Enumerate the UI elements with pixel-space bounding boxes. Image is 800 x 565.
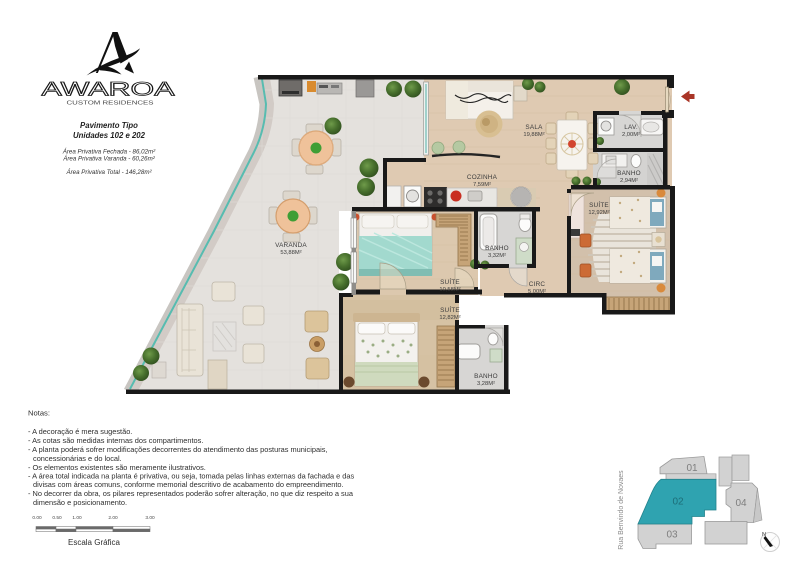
svg-text:N: N [762, 532, 766, 538]
svg-text:Pavimento Tipo: Pavimento Tipo [80, 121, 138, 130]
svg-text:SUÍTE: SUÍTE [589, 200, 609, 209]
svg-text:CUSTOM RESIDENCES: CUSTOM RESIDENCES [67, 101, 155, 107]
svg-text:2,94M²: 2,94M² [620, 178, 638, 184]
svg-text:SUÍTE: SUÍTE [440, 305, 460, 314]
svg-text:VARANDA: VARANDA [275, 242, 307, 249]
svg-text:- No decorrer da obra, os pila: - No decorrer da obra, os pilares repres… [28, 489, 354, 498]
svg-text:- As cotas são medidas interna: - As cotas são medidas internas dos comp… [28, 436, 203, 445]
svg-text:- A planta poderá sofrer modif: - A planta poderá sofrer modificações de… [28, 445, 328, 454]
svg-text:01: 01 [686, 463, 698, 474]
svg-text:Escala Gráfica: Escala Gráfica [68, 538, 121, 547]
svg-text:LAV.: LAV. [624, 124, 638, 131]
svg-text:COZINHA: COZINHA [467, 174, 498, 181]
svg-text:03: 03 [666, 530, 678, 541]
svg-text:SALA: SALA [525, 124, 543, 131]
svg-text:3,28M²: 3,28M² [477, 381, 495, 387]
svg-text:5,00M²: 5,00M² [528, 289, 546, 295]
svg-text:Rua Benvindo de Novaes: Rua Benvindo de Novaes [618, 470, 625, 550]
svg-text:SUÍTE: SUÍTE [440, 277, 460, 286]
svg-text:53,88M²: 53,88M² [280, 250, 301, 256]
svg-text:CIRC: CIRC [529, 281, 546, 288]
svg-text:02: 02 [672, 497, 684, 508]
svg-text:3,32M²: 3,32M² [488, 253, 506, 259]
svg-text:dimensão e posicionamento.: dimensão e posicionamento. [33, 498, 127, 507]
svg-text:- A decoração é mera sugestão.: - A decoração é mera sugestão. [28, 427, 132, 436]
svg-text:Área Privativa Fechada - 86,02: Área Privativa Fechada - 86,02m² [62, 149, 156, 156]
svg-text:19,88M²: 19,88M² [523, 132, 544, 138]
svg-text:Unidades 102 e 202: Unidades 102 e 202 [73, 131, 146, 140]
svg-text:AWAROA: AWAROA [42, 80, 176, 101]
svg-text:BANHO: BANHO [474, 373, 498, 380]
svg-text:10,58M²: 10,58M² [439, 287, 460, 293]
svg-text:divisas com áreas comuns, conf: divisas com áreas comuns, conforme memor… [33, 480, 344, 489]
svg-text:0.00: 0.00 [32, 515, 42, 521]
svg-text:0.50: 0.50 [52, 515, 62, 521]
svg-text:04: 04 [735, 498, 747, 509]
svg-text:1.00: 1.00 [72, 515, 82, 521]
svg-text:3.00: 3.00 [145, 515, 155, 521]
svg-text:7,59M²: 7,59M² [473, 182, 491, 188]
svg-text:12,82M²: 12,82M² [439, 315, 460, 321]
svg-text:concessionárias e do local.: concessionárias e do local. [33, 454, 122, 463]
svg-text:Notas:: Notas: [28, 409, 50, 418]
svg-text:12,92M²: 12,92M² [588, 210, 609, 216]
svg-text:BANHO: BANHO [485, 245, 509, 252]
svg-text:Área Privativa Varanda - 60,26: Área Privativa Varanda - 60,26m² [62, 156, 156, 163]
svg-text:2.00: 2.00 [108, 515, 118, 521]
svg-text:Área Privativa Total - 146,28m: Área Privativa Total - 146,28m² [65, 169, 152, 176]
svg-text:2,00M²: 2,00M² [622, 132, 640, 138]
svg-text:BANHO: BANHO [617, 170, 641, 177]
